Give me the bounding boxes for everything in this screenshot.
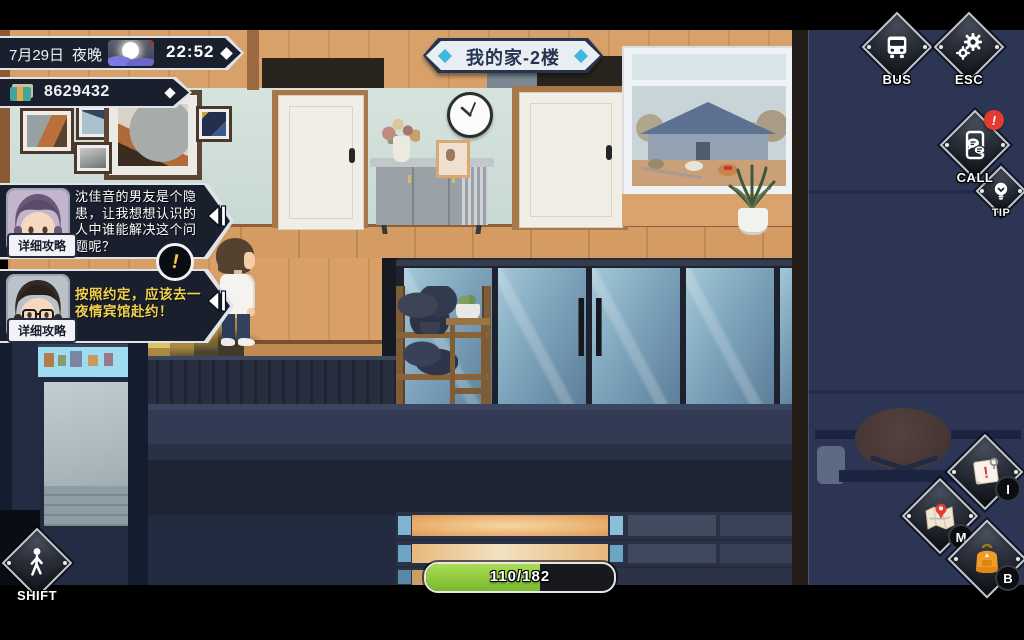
cabinet-knob: [408, 175, 411, 183]
left-shelf-window: [38, 344, 130, 377]
left-door[interactable]: [278, 95, 364, 230]
call-label: CALL: [957, 170, 994, 185]
painting-small-3: [74, 142, 112, 174]
shelf-plant-bottom: [398, 338, 458, 378]
money-icon: [10, 84, 35, 101]
painting-small-1: [20, 108, 74, 154]
glass-top-rail: [396, 260, 806, 266]
progress-label: 110/182: [426, 568, 614, 585]
corner-dot: [7, 561, 11, 565]
progress-bar: 110/182: [424, 562, 616, 593]
corner-dot: [867, 45, 871, 49]
datetime-banner: 7月29日 夜晚 22:52: [0, 36, 244, 70]
corner-dot: [63, 561, 67, 565]
corner-dot: [969, 514, 973, 518]
stand-top: [446, 318, 490, 325]
cabinet-body: [376, 167, 488, 225]
corner-dot: [980, 189, 984, 193]
bag-badge: B: [995, 565, 1021, 591]
corner-dot: [945, 143, 949, 147]
lit-window: [412, 515, 608, 536]
quest-box-1: 沈佳音的男友是个隐患，让我想想认识的人中谁能解决这个问题呢？ 详细攻略: [0, 183, 234, 259]
quest-alert-badge: !: [156, 243, 194, 281]
wall-clock: [447, 92, 493, 138]
shelf-item: [104, 353, 113, 366]
location-label: 我的家-2楼: [423, 44, 603, 70]
right-door-frame: [512, 86, 628, 230]
glass-panel[interactable]: [686, 268, 774, 404]
money-banner: 8629432: [0, 77, 192, 108]
slat-wall: [128, 356, 396, 408]
phone-chat-icon: [961, 130, 989, 160]
window-cap: [398, 570, 411, 584]
corner-dot: [923, 45, 927, 49]
shift-label: SHIFT: [17, 588, 57, 603]
photo-subject: [446, 149, 455, 161]
badge-letter: B: [1003, 571, 1012, 586]
walking-person-icon: [23, 547, 51, 579]
quest-collapse-icon[interactable]: [204, 203, 228, 229]
bus-button[interactable]: BUS: [864, 14, 930, 80]
period-label: 夜晚: [72, 44, 102, 65]
badge-letter: I: [1006, 482, 1010, 497]
glass-panel[interactable]: [592, 268, 680, 404]
painting-small-4: [196, 106, 232, 142]
window-pane: [632, 54, 786, 80]
artwork: [27, 115, 67, 147]
corner-dot: [939, 45, 943, 49]
left-big-window: [40, 378, 140, 490]
right-door[interactable]: [519, 92, 623, 228]
alert-exclamation: !: [169, 250, 180, 274]
bus-icon: [883, 33, 911, 61]
glass-reflection: [498, 268, 586, 404]
shelf-item: [70, 351, 82, 367]
tip-label: TIP: [992, 207, 1011, 219]
artwork: [82, 110, 106, 134]
door-panel: [530, 103, 612, 217]
window-cap: [610, 516, 623, 535]
wall-seam: [809, 390, 1024, 394]
time-label: 22:52: [166, 42, 214, 62]
window-cap: [610, 545, 623, 562]
icon-mark: [149, 41, 153, 45]
quest-collapse-icon[interactable]: [204, 288, 228, 314]
stair-step[interactable]: [146, 342, 172, 356]
left-door-frame: [272, 90, 368, 228]
moon-night-icon: [108, 40, 154, 66]
corner-dot: [995, 45, 999, 49]
window-cap: [398, 545, 411, 562]
quest-box-2: 按照约定，应该去一夜情宾馆赴约！ 详细攻略: [0, 269, 234, 343]
shift-button[interactable]: SHIFT: [4, 530, 70, 596]
hill: [126, 58, 154, 66]
banknote-band: [17, 87, 23, 101]
character-face: [244, 252, 255, 269]
gears-icon: [954, 32, 984, 62]
terrace-table: [855, 408, 951, 470]
lit-window: [412, 544, 608, 563]
letterbox-bottom: [0, 585, 1024, 640]
shelf-item: [58, 355, 66, 366]
guide-button[interactable]: 详细攻略: [7, 233, 77, 258]
cabinet-top: [370, 158, 494, 167]
character-arm: [246, 280, 255, 310]
artwork: [80, 148, 106, 168]
clock-hands: [450, 95, 490, 135]
guide-button[interactable]: 详细攻略: [7, 318, 77, 343]
cabinet-leg: [381, 225, 387, 234]
shelf-item: [88, 355, 98, 366]
vase: [393, 136, 410, 162]
dim-window: [628, 515, 716, 536]
character-shoe: [238, 338, 255, 346]
esc-button[interactable]: ESC: [936, 14, 1002, 80]
quest-text: 按照约定，应该去一夜情宾馆赴约！: [75, 286, 205, 321]
artwork: [118, 104, 188, 166]
door-panel: [289, 106, 353, 219]
dim-window: [720, 544, 802, 563]
lightbulb-icon: [992, 181, 1010, 201]
location-banner: 我的家-2楼: [423, 38, 603, 73]
window-cap: [398, 516, 411, 535]
glass-panel[interactable]: [498, 268, 586, 404]
plant-pot: [738, 208, 768, 235]
corner-dot: [954, 557, 958, 561]
banknote: [10, 87, 31, 101]
left-lower-pane: [40, 486, 140, 530]
corner-dot: [1018, 189, 1022, 193]
door-handle: [349, 148, 355, 163]
photo-frame: [436, 140, 470, 178]
glass-door-handle: [578, 298, 584, 356]
dim-window: [720, 515, 802, 536]
corner-dot: [952, 470, 956, 474]
corner-dot: [1001, 143, 1005, 147]
stand-crossbar: [450, 388, 486, 394]
potted-plant: [722, 158, 782, 214]
inventory-badge: I: [995, 476, 1021, 502]
character-leg: [237, 314, 250, 340]
cabinet-seam: [412, 167, 414, 225]
door-handle: [606, 145, 612, 160]
glass-reflection: [686, 268, 774, 404]
pillar: [128, 340, 148, 585]
money-amount: 8629432: [44, 83, 110, 101]
wood-beam-mid: [247, 30, 259, 90]
glass-reflection: [592, 268, 680, 404]
game-screen: 7月29日 夜晚 22:52 8629432 我的家-2楼: [0, 0, 1024, 640]
dim-window: [628, 544, 716, 563]
badge-exclamation: !: [991, 112, 998, 128]
wood-beam-right: [792, 30, 808, 587]
corner-dot: [907, 514, 911, 518]
corner-dot: [1014, 470, 1018, 474]
shelf-pot: [420, 322, 440, 334]
door-lintel-left: [262, 58, 384, 90]
artwork: [202, 112, 226, 136]
shelf-item: [44, 353, 54, 367]
bus-label: BUS: [883, 72, 912, 87]
date-label: 7月29日: [9, 44, 64, 65]
bag-button[interactable]: B: [951, 523, 1023, 595]
first-floor-lower: [128, 460, 806, 515]
glass-door-handle: [596, 298, 602, 356]
corner-dot: [1016, 557, 1020, 561]
first-floor-floor: [128, 404, 806, 460]
call-notification-badge: !: [984, 110, 1004, 130]
lit-window-row: [396, 512, 806, 539]
call-button[interactable]: ! CALL: [942, 112, 1008, 178]
esc-label: ESC: [955, 72, 983, 87]
